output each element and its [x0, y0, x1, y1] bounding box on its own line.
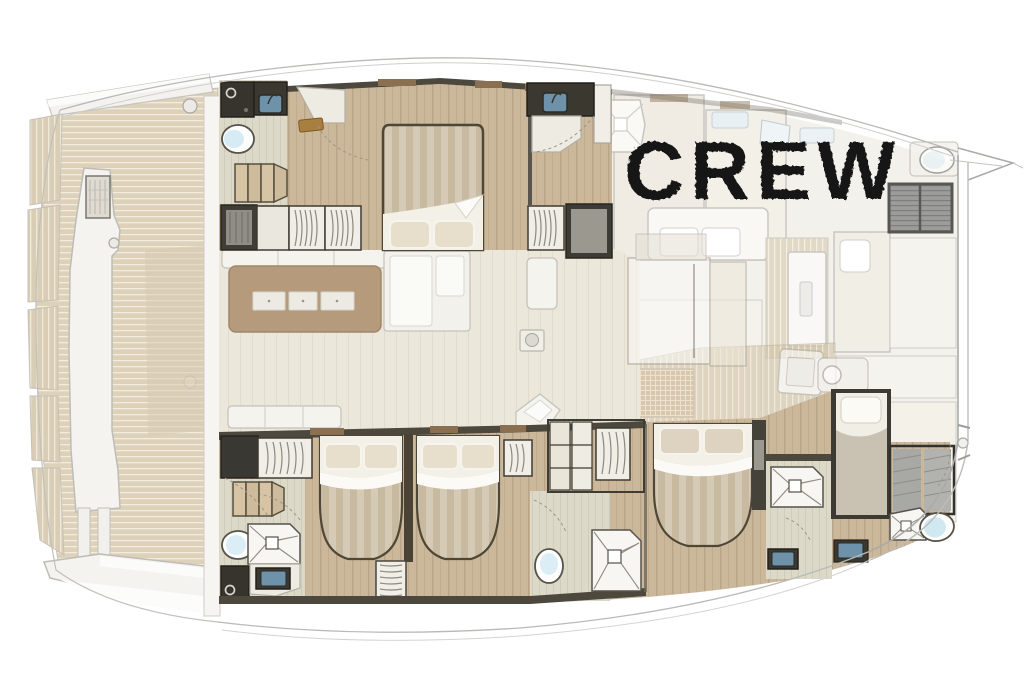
- svg-text:CREW: CREW: [624, 124, 902, 217]
